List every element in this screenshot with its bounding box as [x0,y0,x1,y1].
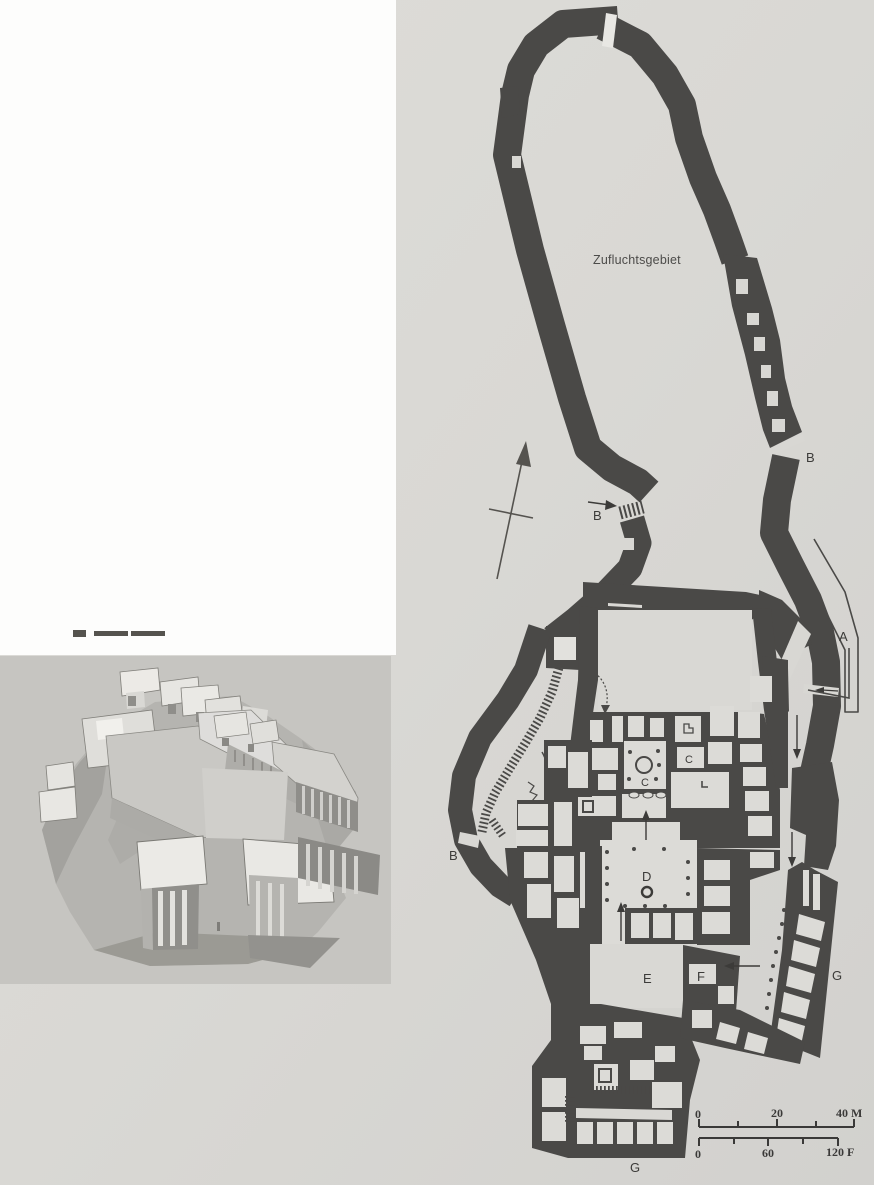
svg-text:B: B [593,508,602,523]
svg-text:G: G [832,968,842,983]
svg-text:Zufluchtsgebiet: Zufluchtsgebiet [593,253,681,267]
svg-text:D: D [642,869,651,884]
svg-text:G: G [630,1160,640,1175]
svg-text:A: A [839,629,848,644]
svg-text:60: 60 [762,1146,774,1160]
svg-text:20: 20 [771,1106,783,1120]
svg-text:40 M: 40 M [836,1106,862,1120]
svg-text:E: E [643,971,652,986]
svg-text:B: B [449,848,458,863]
svg-text:F: F [697,969,705,984]
svg-text:C: C [641,777,649,789]
svg-text:120 F: 120 F [826,1145,854,1159]
svg-text:B: B [806,450,815,465]
svg-text:0: 0 [695,1147,701,1161]
svg-text:C: C [685,754,693,766]
svg-text:0: 0 [695,1107,701,1121]
